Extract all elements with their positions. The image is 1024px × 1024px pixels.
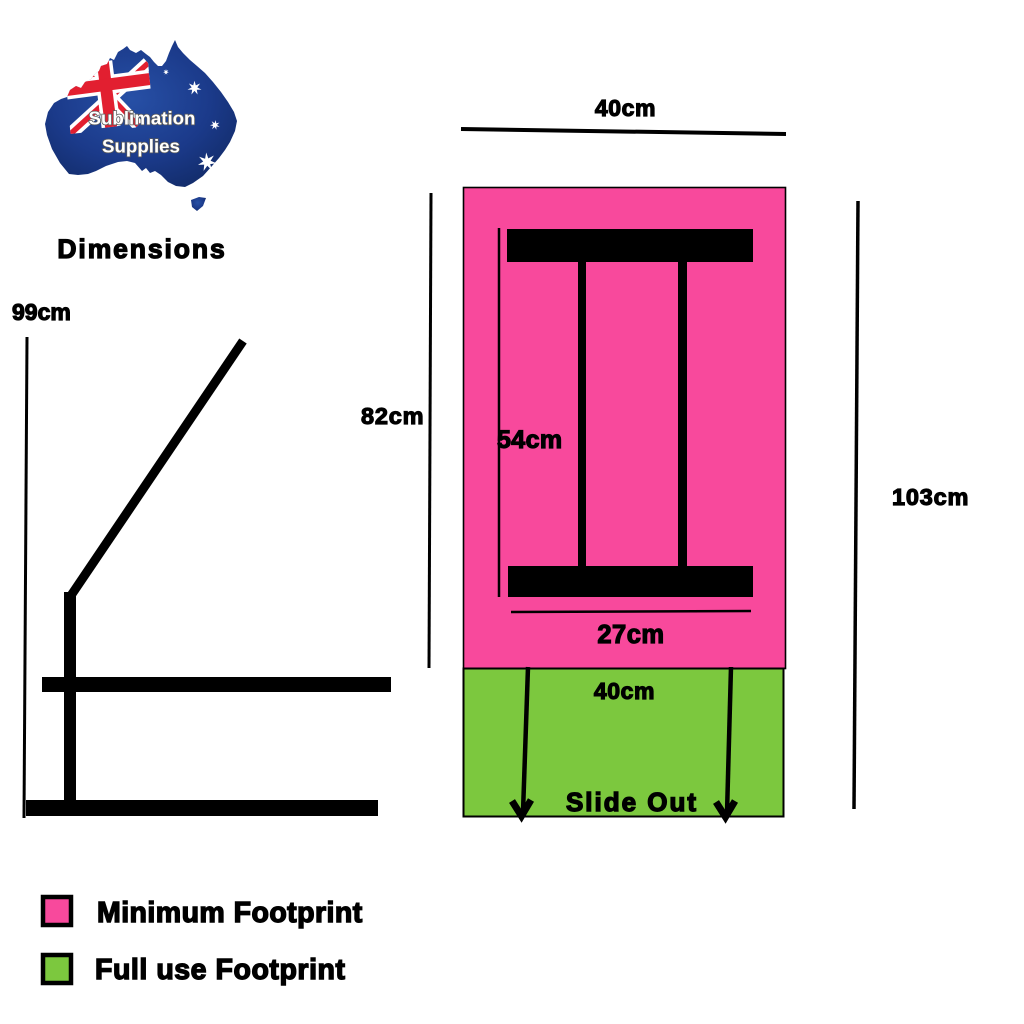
svg-text:99cm: 99cm	[12, 299, 71, 325]
svg-text:Minimum Footprint: Minimum Footprint	[97, 897, 363, 929]
svg-text:40cm: 40cm	[595, 95, 656, 121]
svg-text:Sublimation: Sublimation	[89, 108, 196, 129]
svg-text:Slide Out: Slide Out	[566, 787, 698, 817]
svg-text:54cm: 54cm	[497, 426, 563, 454]
svg-text:40cm: 40cm	[594, 678, 655, 704]
svg-text:Full use Footprint: Full use Footprint	[95, 954, 346, 986]
svg-text:27cm: 27cm	[597, 621, 664, 649]
svg-text:103cm: 103cm	[892, 484, 969, 510]
svg-text:82cm: 82cm	[361, 403, 424, 429]
svg-text:Supplies: Supplies	[102, 136, 180, 157]
svg-text:Dimensions: Dimensions	[57, 234, 226, 264]
